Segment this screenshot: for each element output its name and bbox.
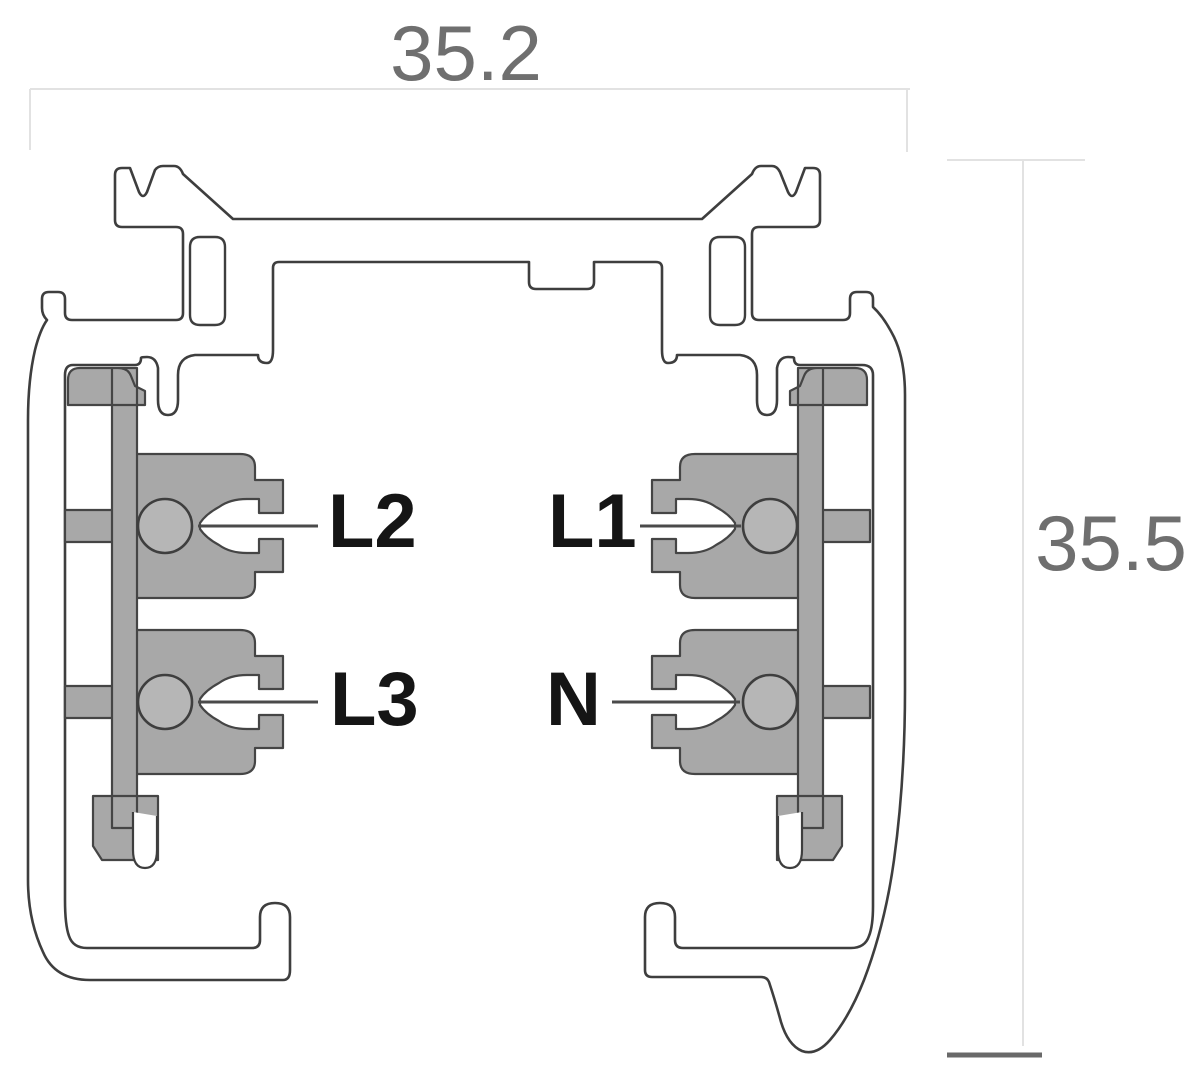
- track-profile-diagram: 35.2 35.5 L2 L1 L3 N: [0, 0, 1200, 1076]
- contact-l1: [743, 499, 797, 553]
- right-insulator: [652, 368, 870, 860]
- left-insulator: [65, 368, 283, 860]
- right-leg-channel: [710, 237, 745, 325]
- label-l2: L2: [328, 479, 417, 564]
- label-n: N: [546, 657, 601, 742]
- width-dimension-value: 35.2: [390, 9, 542, 97]
- shell-outline: [28, 166, 905, 1052]
- diagram-canvas: 35.2 35.5 L2 L1 L3 N: [0, 0, 1200, 1076]
- left-insulator-group: [65, 368, 283, 868]
- contact-l2: [138, 499, 192, 553]
- label-l1: L1: [548, 479, 637, 564]
- left-retainer-rib: [133, 812, 157, 868]
- height-dimension-value: 35.5: [1035, 499, 1187, 587]
- contact-l3: [138, 675, 192, 729]
- right-insulator-group: [652, 368, 870, 868]
- contact-n: [743, 675, 797, 729]
- label-l3: L3: [330, 657, 419, 742]
- width-dimension: 35.2: [30, 9, 910, 152]
- left-leg-channel: [190, 237, 225, 325]
- height-dimension: 35.5: [947, 160, 1187, 1055]
- right-retainer-rib: [778, 812, 802, 868]
